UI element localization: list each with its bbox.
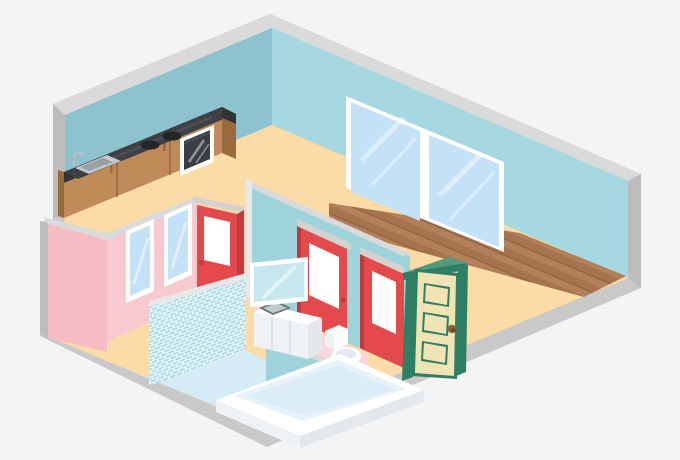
- counter-right-side: [222, 118, 236, 159]
- right-outer-corner: [628, 174, 641, 288]
- apartment-scene: [0, 0, 680, 460]
- door3-panel: [372, 271, 396, 334]
- mirror: [250, 257, 308, 307]
- green-entry-door: [402, 254, 468, 381]
- door3-jamb: [360, 254, 364, 350]
- door1-knob: [198, 260, 203, 265]
- pink-wall-return-face: [48, 224, 107, 352]
- entry-door-knob-shadow: [451, 328, 455, 332]
- cabinet-handle: [110, 165, 113, 173]
- pink-wall-west-edge: [40, 221, 48, 338]
- isometric-apartment-illustration: [0, 0, 680, 460]
- counter-left-side: [58, 170, 64, 218]
- stove-burner: [141, 140, 160, 149]
- stove-burner: [163, 131, 182, 140]
- door1-panel: [204, 216, 230, 266]
- cabinet-handle: [163, 143, 166, 151]
- door2-knob: [341, 298, 345, 302]
- vanity-side: [308, 318, 322, 359]
